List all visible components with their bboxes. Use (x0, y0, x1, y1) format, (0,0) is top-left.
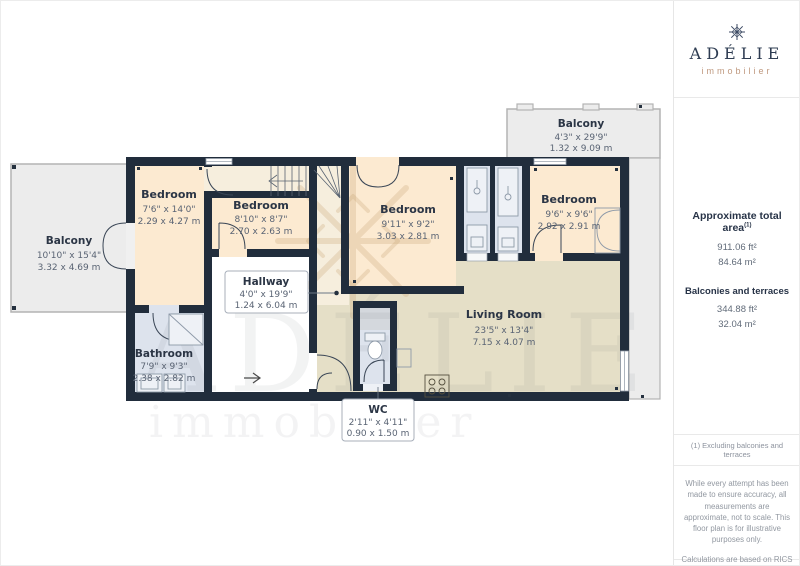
svg-text:0.90 x 1.50 m: 0.90 x 1.50 m (347, 429, 410, 439)
svg-text:1.24 x 6.04 m: 1.24 x 6.04 m (235, 301, 298, 311)
svg-text:Bedroom: Bedroom (233, 199, 289, 212)
svg-text:8'10" x 8'7": 8'10" x 8'7" (235, 215, 288, 225)
svg-text:1.32 x 9.09 m: 1.32 x 9.09 m (550, 144, 613, 154)
svg-text:Bedroom: Bedroom (380, 203, 436, 216)
room-label-balcony-left: Balcony 10'10" x 15'4" 3.32 x 4.69 m (37, 235, 101, 273)
svg-text:Balcony: Balcony (558, 118, 605, 130)
svg-text:2.70 x 2.63 m: 2.70 x 2.63 m (230, 227, 293, 237)
svg-text:2.92 x 2.91 m: 2.92 x 2.91 m (538, 222, 601, 232)
room-label-balcony-top: Balcony 4'3" x 29'9" 1.32 x 9.09 m (550, 118, 613, 154)
shower-icon (467, 168, 487, 251)
room-label-bedroom-2: Bedroom 8'10" x 8'7" 2.70 x 2.63 m (230, 199, 293, 237)
svg-text:Bedroom: Bedroom (141, 188, 197, 201)
total-area-label: Approximate total area (692, 210, 781, 234)
bath-shower-icon (169, 314, 203, 345)
svg-text:9'6" x 9'6": 9'6" x 9'6" (545, 210, 592, 220)
brand-name: ADÉLIE (690, 44, 785, 63)
info-sidebar: ADÉLIE immobilier Approximate total area… (673, 1, 800, 566)
room-label-hallway: Hallway 4'0" x 19'9" 1.24 x 6.04 m (235, 276, 298, 311)
svg-text:4'3" x 29'9": 4'3" x 29'9" (555, 133, 608, 143)
svg-text:7'9" x 9'3": 7'9" x 9'3" (140, 362, 187, 372)
svg-text:Hallway: Hallway (243, 276, 290, 288)
svg-text:7'6" x 14'0": 7'6" x 14'0" (143, 205, 196, 215)
floorplan-area: ADÉLIE immobilier (1, 1, 673, 566)
room-label-bedroom-4: Bedroom 9'6" x 9'6" 2.92 x 2.91 m (538, 193, 601, 232)
balconies-m: 32.04 m² (680, 318, 794, 333)
svg-text:2'11" x 4'11": 2'11" x 4'11" (349, 418, 408, 428)
svg-text:Bedroom: Bedroom (541, 193, 597, 206)
room-label-bathroom-metric: 2.38 x 2.82 m (133, 374, 196, 384)
total-area-ft: 911.06 ft² (680, 241, 794, 256)
svg-text:4'0" x 19'9": 4'0" x 19'9" (240, 290, 293, 300)
floorplan-svg: ADÉLIE immobilier (1, 1, 673, 566)
shower-icon-2 (498, 168, 518, 251)
svg-text:23'5" x 13'4": 23'5" x 13'4" (475, 326, 534, 336)
svg-text:Bathroom: Bathroom (135, 348, 193, 360)
total-area-m: 84.64 m² (680, 256, 794, 271)
disclaimer-text: While every attempt has been made to ens… (681, 478, 793, 546)
brand-tagline: immobilier (701, 66, 772, 76)
standards-text: Calculations are based on RICS IPMS 3C s… (681, 554, 793, 566)
balconies-label: Balconies and terraces (680, 286, 794, 297)
svg-text:WC: WC (368, 404, 388, 416)
svg-text:3.32 x 4.69 m: 3.32 x 4.69 m (38, 263, 101, 273)
svg-text:10'10" x 15'4": 10'10" x 15'4" (37, 251, 101, 261)
total-area-footnote-marker: (1) (744, 223, 751, 229)
disclaimer-section: While every attempt has been made to ens… (674, 466, 800, 560)
svg-text:2.29 x 4.27 m: 2.29 x 4.27 m (138, 217, 201, 227)
svg-text:9'11" x 9'2": 9'11" x 9'2" (382, 220, 435, 230)
brand-logo: ADÉLIE immobilier (674, 1, 800, 98)
balconies-ft: 344.88 ft² (680, 303, 794, 318)
room-label-living: Living Room 23'5" x 13'4" 7.15 x 4.07 m (466, 308, 542, 348)
svg-text:7.15 x 4.07 m: 7.15 x 4.07 m (473, 338, 536, 348)
svg-text:Balcony: Balcony (46, 235, 93, 247)
total-area-section: Approximate total area(1) 911.06 ft² 84.… (674, 98, 800, 435)
svg-text:3.03 x 2.81 m: 3.03 x 2.81 m (377, 232, 440, 242)
svg-text:Living Room: Living Room (466, 308, 542, 321)
room-label-bedroom-1: Bedroom 7'6" x 14'0" 2.29 x 4.27 m (138, 188, 201, 227)
room-label-bedroom-3: Bedroom 9'11" x 9'2" 3.03 x 2.81 m (377, 203, 440, 242)
floorplan-page: ADÉLIE immobilier (0, 0, 800, 566)
snowflake-logo-icon (728, 23, 746, 41)
total-area-title: Approximate total area(1) (680, 210, 794, 234)
footnote: (1) Excluding balconies and terraces (674, 435, 800, 466)
watermark-subtext: immobilier (149, 397, 480, 448)
